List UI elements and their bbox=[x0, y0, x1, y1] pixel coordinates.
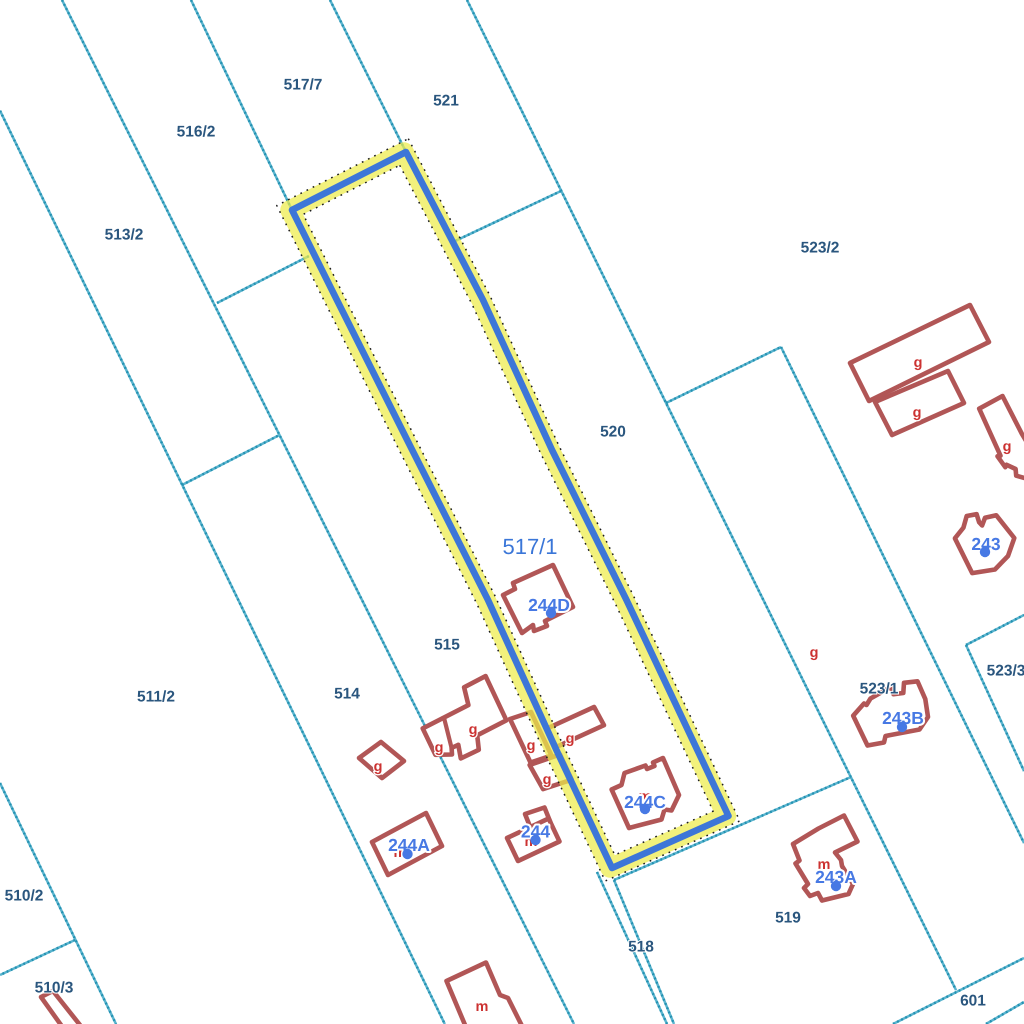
svg-text:g: g bbox=[566, 731, 575, 747]
svg-text:g: g bbox=[435, 740, 444, 756]
svg-text:523/1: 523/1 bbox=[860, 681, 899, 698]
svg-text:g: g bbox=[527, 738, 536, 754]
svg-text:521: 521 bbox=[433, 93, 459, 110]
svg-text:g: g bbox=[543, 772, 552, 788]
svg-text:513/2: 513/2 bbox=[105, 227, 144, 244]
svg-text:518: 518 bbox=[628, 939, 654, 956]
svg-text:511/2: 511/2 bbox=[137, 689, 175, 706]
svg-text:m: m bbox=[476, 999, 489, 1015]
svg-text:g: g bbox=[1003, 439, 1012, 455]
svg-text:523/2: 523/2 bbox=[801, 240, 840, 257]
svg-text:514: 514 bbox=[334, 686, 360, 703]
svg-text:601: 601 bbox=[960, 993, 986, 1010]
svg-text:510/3: 510/3 bbox=[35, 980, 74, 997]
svg-text:510/2: 510/2 bbox=[5, 888, 44, 905]
svg-text:g: g bbox=[913, 405, 922, 421]
svg-text:515: 515 bbox=[434, 637, 460, 654]
svg-text:523/3: 523/3 bbox=[987, 663, 1024, 680]
svg-text:g: g bbox=[810, 645, 819, 661]
svg-text:g: g bbox=[914, 355, 923, 371]
svg-text:520: 520 bbox=[600, 424, 626, 441]
svg-text:517/1: 517/1 bbox=[502, 534, 557, 559]
svg-text:g: g bbox=[374, 759, 383, 775]
svg-text:519: 519 bbox=[775, 910, 801, 927]
svg-text:516/2: 516/2 bbox=[177, 124, 216, 141]
svg-text:g: g bbox=[469, 722, 478, 738]
svg-text:517/7: 517/7 bbox=[284, 77, 323, 94]
